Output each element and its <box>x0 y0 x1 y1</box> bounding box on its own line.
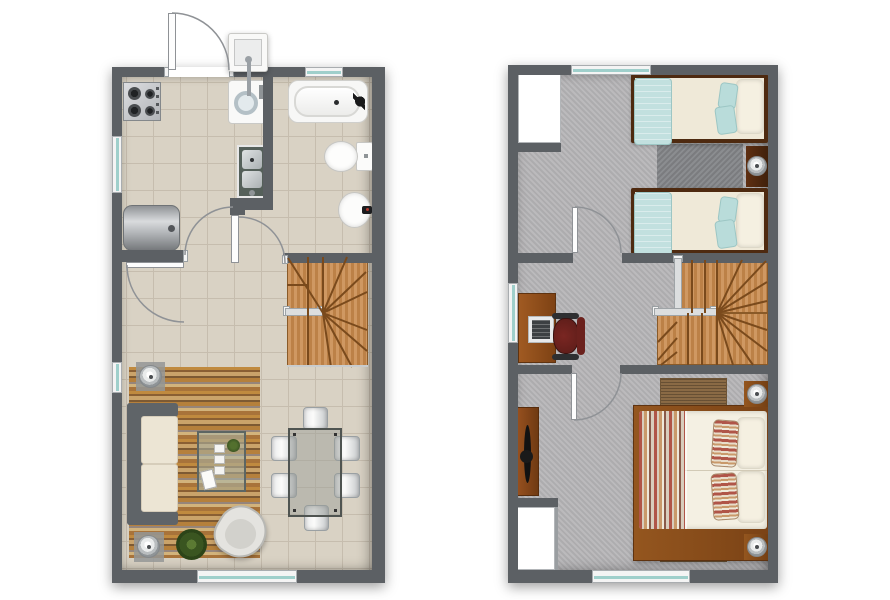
sink-bowl <box>242 171 262 188</box>
washer-door-ring <box>234 91 258 115</box>
twin-bed-1-cushion <box>714 105 738 136</box>
toilet-button <box>364 154 368 158</box>
bed-pillow <box>737 417 765 469</box>
toilet-bowl <box>324 141 358 172</box>
burner-large <box>128 104 141 117</box>
coffee-table-candle <box>214 444 225 453</box>
table-corner-dot <box>334 433 337 436</box>
stair-railing <box>285 308 323 316</box>
twin-bed-1-pillow <box>736 79 764 134</box>
gas-stove <box>123 82 161 121</box>
hall-door-leaf <box>231 215 239 263</box>
exterior-laundry-sink <box>228 33 268 72</box>
striped-pillow <box>710 472 739 521</box>
dresser-decor-knob <box>520 450 533 463</box>
water-heater <box>123 205 180 251</box>
door-jamb <box>282 255 288 264</box>
twin-bed-1-blanket <box>634 78 672 145</box>
window <box>508 283 518 343</box>
floor-lamp-top <box>139 365 162 388</box>
staircase-second-floor-lower <box>657 313 768 365</box>
nightstand-lamp <box>747 384 767 404</box>
chair-seat <box>553 318 579 354</box>
interior-wall-kitchen <box>122 250 187 262</box>
nightstand-lamp <box>747 537 767 557</box>
heater-cap <box>168 225 175 232</box>
twin-bed-2-blanket <box>634 192 672 256</box>
exterior-wall-right <box>372 67 385 583</box>
nightstand-lamp <box>747 156 767 176</box>
window <box>305 67 343 77</box>
stair-railing <box>674 258 682 315</box>
staircase-second-floor <box>678 260 768 313</box>
exterior-wall-right <box>768 65 778 583</box>
closet <box>517 507 555 570</box>
coffee-table <box>197 431 246 492</box>
entry-door-leaf <box>168 13 176 70</box>
monitor-screen <box>532 320 550 339</box>
bedside-rug <box>657 144 743 189</box>
faucet-pipe <box>247 62 251 96</box>
twin-bed-2-cushion <box>714 219 738 250</box>
dining-table <box>288 428 342 517</box>
stair-railing <box>654 308 717 316</box>
interior-wall-master <box>620 365 768 374</box>
interior-wall-bedroom1 <box>622 253 768 263</box>
dining-chair <box>303 407 328 430</box>
table-corner-dot <box>293 509 296 512</box>
bathtub-faucet <box>353 93 365 110</box>
pedestal-sink <box>338 192 372 228</box>
window <box>112 136 122 193</box>
twin-bed-2-pillow <box>736 193 764 248</box>
burner-large <box>128 87 141 100</box>
interior-wall-master <box>518 365 572 374</box>
closet-wall-thin <box>555 507 558 570</box>
stove-knobs <box>156 87 159 117</box>
faucet-icon <box>249 190 255 196</box>
interior-wall-bedroom1 <box>518 253 573 263</box>
striped-pillow <box>710 419 739 468</box>
closet-wall <box>515 143 561 152</box>
burner-small <box>145 106 155 116</box>
burner-small <box>145 89 155 99</box>
sofa <box>127 403 178 525</box>
coffee-table-candle <box>214 455 225 464</box>
table-corner-dot <box>334 509 337 512</box>
window <box>197 570 297 583</box>
double-bed-striped-blanket <box>639 411 685 529</box>
bedroom1-door-leaf <box>572 207 578 253</box>
bedside-rug <box>660 378 727 407</box>
chair-arm <box>552 354 579 360</box>
plant <box>176 529 207 560</box>
coffee-table-candle <box>214 466 225 475</box>
floor-lamp-bottom <box>137 535 160 558</box>
interior-wall-stub <box>230 198 245 215</box>
sofa-arm-top <box>127 403 178 417</box>
sofa-arm-bottom <box>127 511 178 525</box>
toilet <box>324 140 373 173</box>
kitchen-door-leaf <box>126 262 184 268</box>
window <box>592 570 690 583</box>
bathtub-drain <box>334 100 339 105</box>
sink-tap-dot <box>366 208 369 211</box>
sofa-cushion <box>141 416 178 464</box>
closet-wall <box>515 498 558 507</box>
bathtub <box>288 80 368 123</box>
door-jamb <box>183 250 188 262</box>
window <box>571 65 651 75</box>
window <box>112 362 122 393</box>
armchair-cushion <box>220 514 261 555</box>
bathtub-inner <box>294 86 360 117</box>
closet <box>518 73 561 143</box>
table-corner-dot <box>293 433 296 436</box>
interior-wall-bathroom <box>263 77 273 208</box>
chair-back <box>577 317 585 355</box>
office-chair <box>550 310 588 360</box>
sink-drain <box>250 158 254 162</box>
master-door-leaf <box>571 373 577 420</box>
coffee-table-plant <box>227 439 240 452</box>
floor-plan-canvas <box>0 0 890 600</box>
bed-pillow <box>737 471 765 523</box>
dresser <box>515 407 539 496</box>
entry-door-arc <box>172 13 229 70</box>
interior-wall-stairs <box>283 253 372 263</box>
sofa-cushion <box>141 464 178 512</box>
